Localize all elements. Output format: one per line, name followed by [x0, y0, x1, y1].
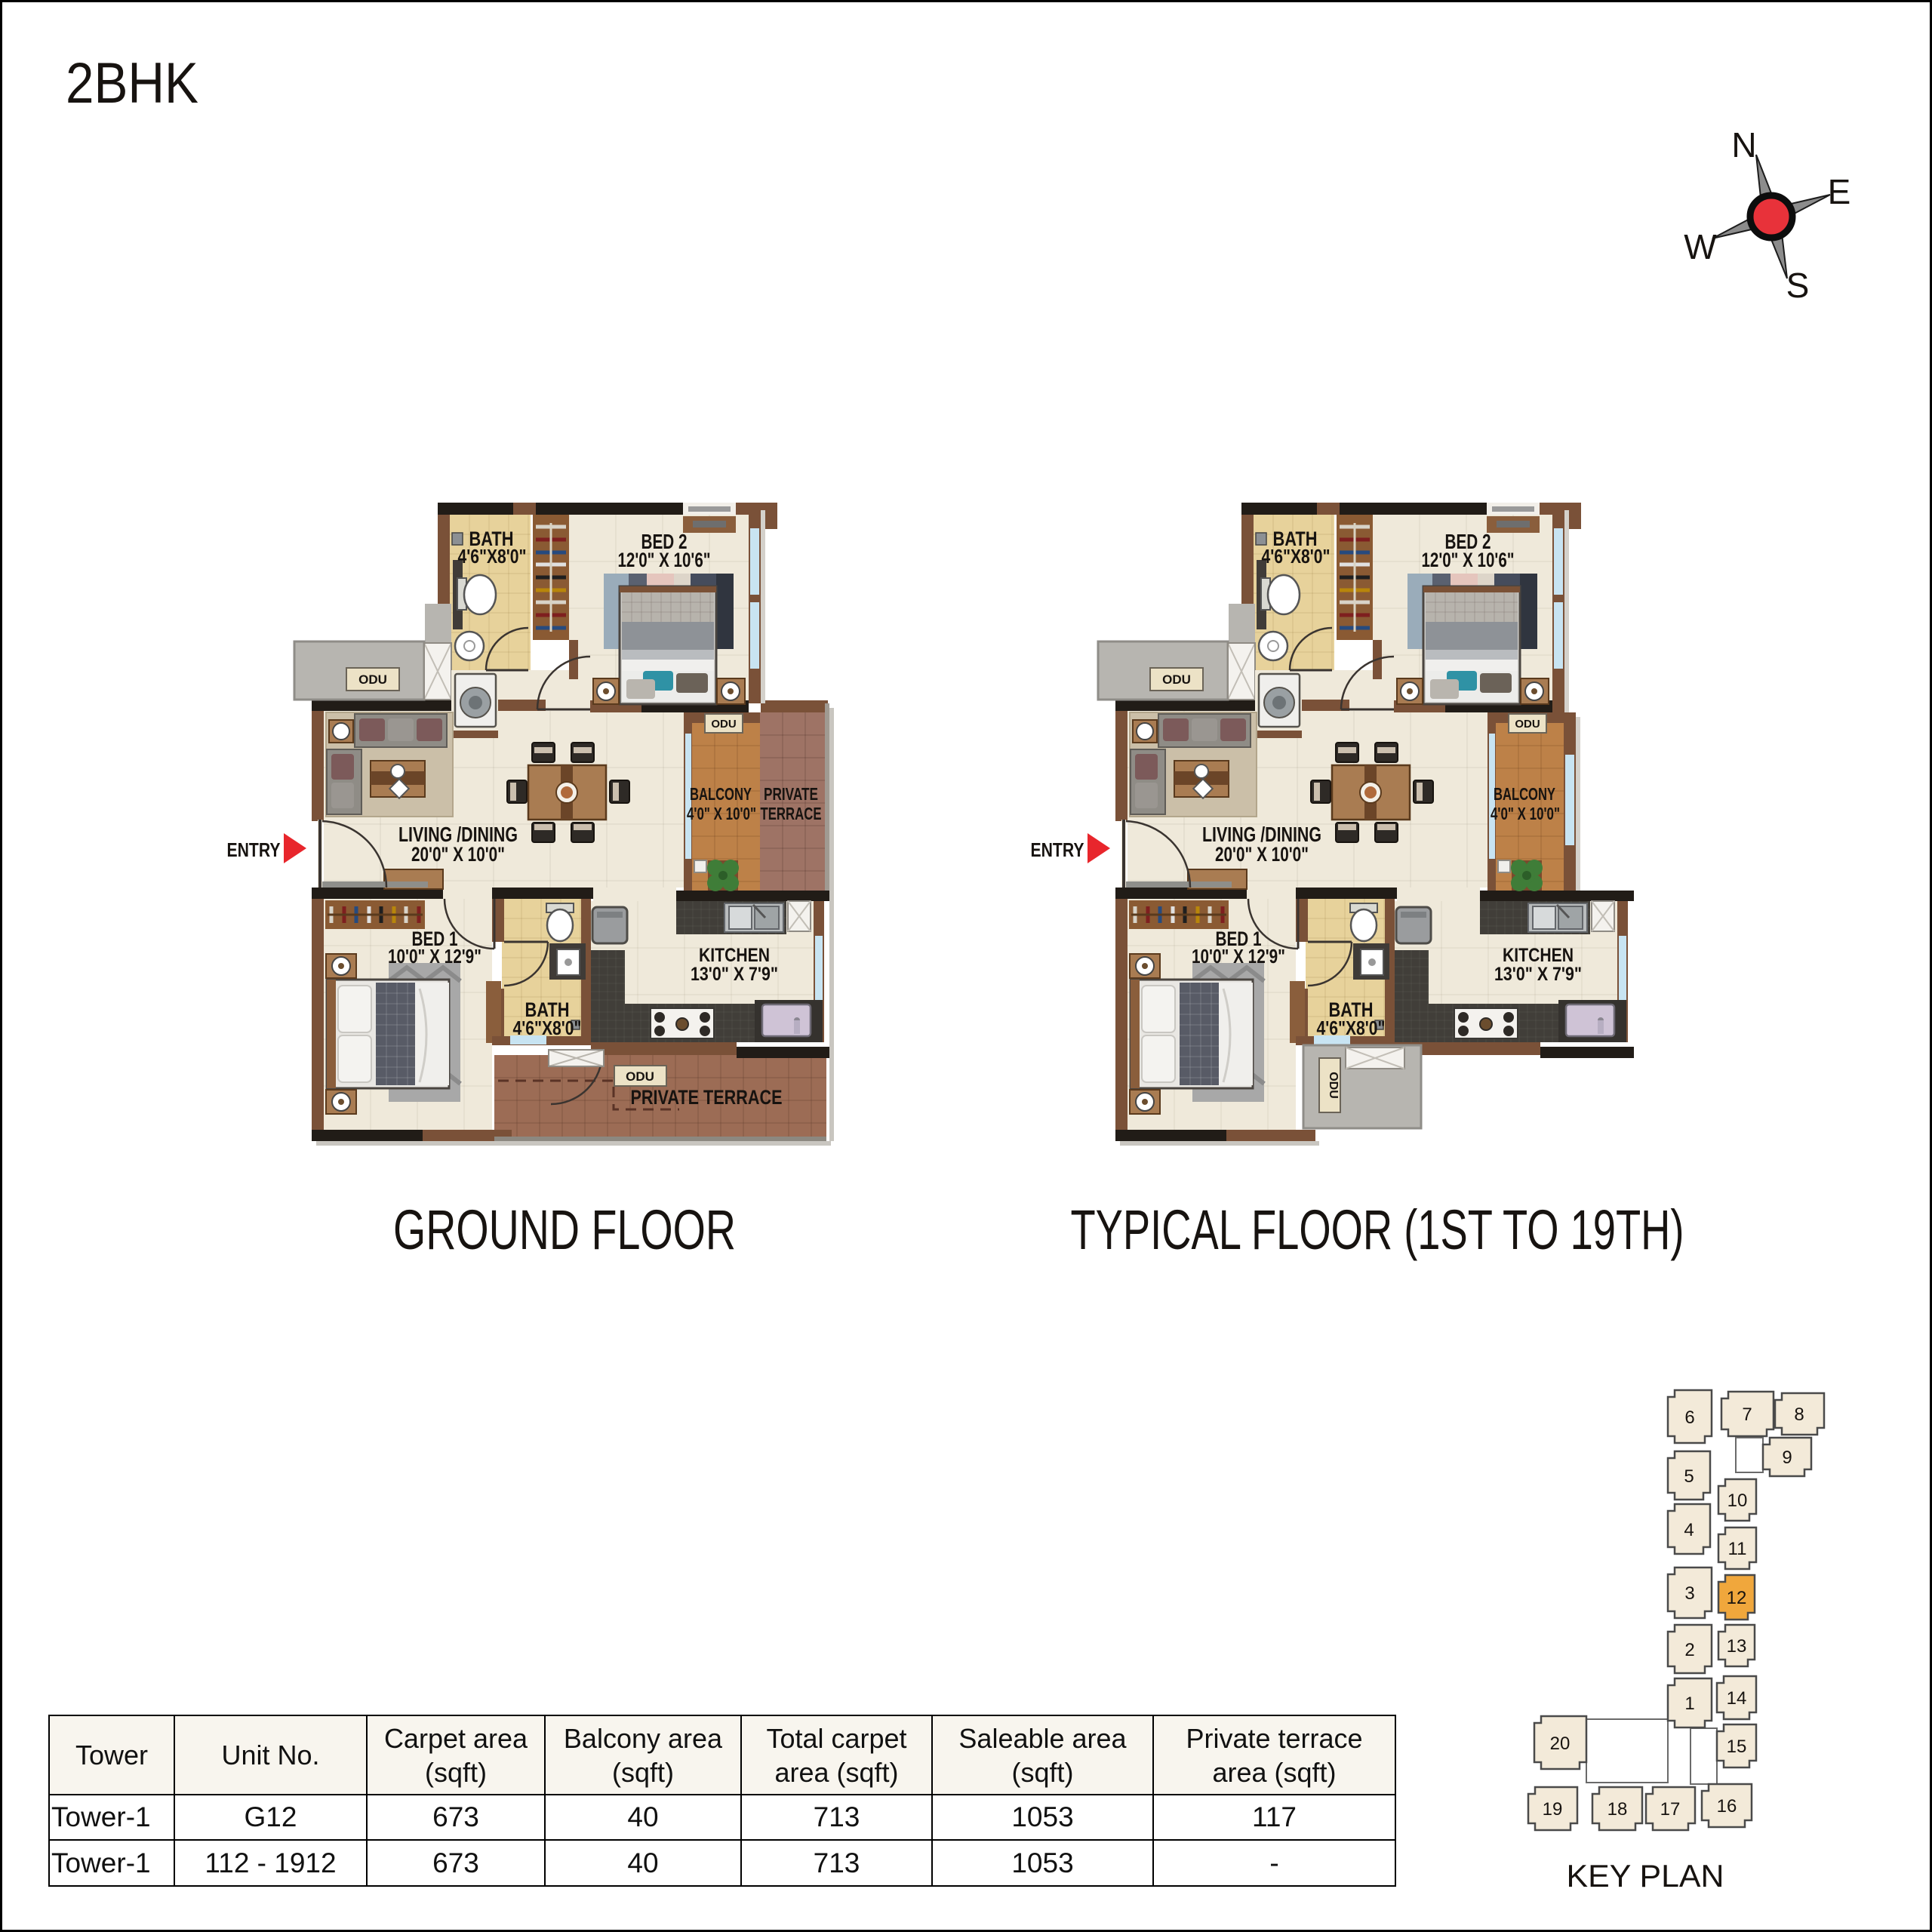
svg-text:TERRACE: TERRACE — [761, 804, 822, 823]
svg-text:2: 2 — [1684, 1640, 1694, 1660]
svg-text:ODU: ODU — [1162, 672, 1191, 687]
svg-text:7: 7 — [1742, 1404, 1752, 1425]
svg-text:13'0" X 7'9": 13'0" X 7'9" — [1494, 964, 1582, 985]
svg-text:4'0" X 10'0": 4'0" X 10'0" — [687, 804, 756, 823]
svg-text:19: 19 — [1543, 1799, 1563, 1820]
svg-text:BALCONY: BALCONY — [1494, 784, 1555, 804]
svg-text:8: 8 — [1794, 1404, 1804, 1425]
svg-text:KEY PLAN: KEY PLAN — [1567, 1858, 1724, 1894]
svg-text:ENTRY: ENTRY — [227, 838, 281, 861]
svg-text:13: 13 — [1727, 1636, 1747, 1657]
svg-text:4'6"X8'0": 4'6"X8'0" — [513, 1017, 582, 1039]
svg-text:ODU: ODU — [1515, 718, 1540, 731]
svg-text:1: 1 — [1684, 1694, 1694, 1714]
svg-text:GROUND FLOOR: GROUND FLOOR — [393, 1198, 736, 1261]
svg-text:17: 17 — [1660, 1799, 1681, 1820]
svg-text:BALCONY: BALCONY — [690, 784, 752, 804]
svg-text:4: 4 — [1684, 1520, 1694, 1540]
svg-text:4'6"X8'0": 4'6"X8'0" — [1262, 545, 1331, 568]
svg-text:N: N — [1731, 125, 1756, 165]
svg-text:ODU: ODU — [626, 1069, 654, 1084]
svg-text:10'0" X 12'9": 10'0" X 12'9" — [1192, 945, 1285, 968]
svg-text:20: 20 — [1550, 1734, 1571, 1754]
svg-text:20'0" X 10'0": 20'0" X 10'0" — [411, 843, 505, 866]
svg-text:12'0" X 10'6": 12'0" X 10'6" — [618, 549, 711, 571]
svg-text:12: 12 — [1727, 1588, 1747, 1608]
svg-text:10: 10 — [1727, 1491, 1748, 1511]
svg-text:4'0" X 10'0": 4'0" X 10'0" — [1491, 804, 1560, 823]
svg-text:18: 18 — [1607, 1799, 1628, 1820]
svg-text:KITCHEN: KITCHEN — [699, 945, 770, 966]
svg-text:2BHK: 2BHK — [66, 51, 198, 115]
svg-text:13'0" X 7'9": 13'0" X 7'9" — [691, 964, 778, 985]
svg-text:ODU: ODU — [358, 672, 387, 687]
svg-text:4'6"X8'0": 4'6"X8'0" — [1317, 1017, 1386, 1039]
svg-text:E: E — [1828, 172, 1851, 211]
svg-text:9: 9 — [1782, 1447, 1792, 1468]
svg-text:10'0" X 12'9": 10'0" X 12'9" — [388, 945, 481, 968]
svg-text:W: W — [1684, 227, 1717, 266]
svg-text:ODU: ODU — [711, 718, 736, 731]
svg-text:15: 15 — [1727, 1737, 1747, 1757]
svg-text:5: 5 — [1684, 1466, 1694, 1487]
svg-text:3: 3 — [1684, 1583, 1694, 1604]
svg-text:PRIVATE TERRACE: PRIVATE TERRACE — [631, 1086, 783, 1109]
svg-text:PRIVATE: PRIVATE — [764, 784, 818, 804]
svg-text:TYPICAL FLOOR (1ST TO 19TH): TYPICAL FLOOR (1ST TO 19TH) — [1071, 1198, 1684, 1261]
svg-text:4'6"X8'0": 4'6"X8'0" — [458, 545, 527, 568]
svg-text:S: S — [1786, 266, 1810, 305]
svg-text:12'0" X 10'6": 12'0" X 10'6" — [1422, 549, 1515, 571]
svg-text:14: 14 — [1727, 1688, 1747, 1709]
svg-text:ODU: ODU — [1327, 1072, 1340, 1099]
svg-text:11: 11 — [1728, 1539, 1747, 1559]
svg-text:ENTRY: ENTRY — [1031, 838, 1084, 861]
svg-text:16: 16 — [1717, 1796, 1737, 1817]
svg-text:6: 6 — [1684, 1407, 1694, 1428]
svg-text:20'0" X 10'0": 20'0" X 10'0" — [1215, 843, 1309, 866]
svg-text:KITCHEN: KITCHEN — [1503, 945, 1574, 966]
